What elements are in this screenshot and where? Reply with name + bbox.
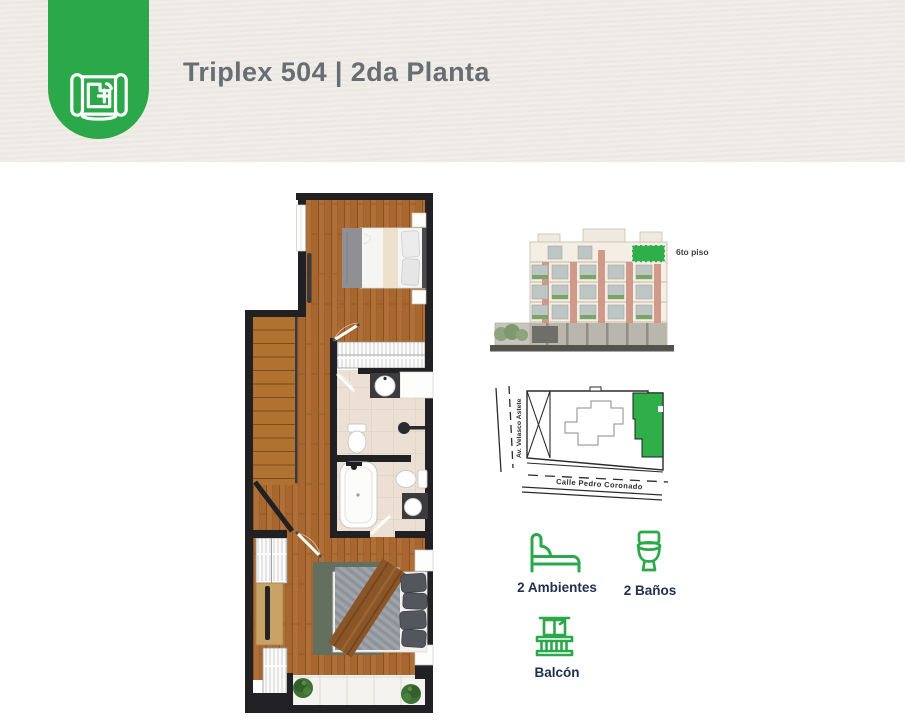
balcony-plant-left [293,678,313,698]
feature-bed-label: 2 Ambientes [512,580,602,595]
toilet-icon [635,530,664,575]
feature-baths-label: 2 Baños [612,583,688,598]
section-badge [48,0,149,139]
elevation-floor-label: 6to piso [676,247,709,257]
page-title: Triplex 504 | 2da Planta [183,57,490,88]
feature-balcony-label: Balcón [512,665,602,680]
bed-icon [526,531,582,575]
blueprint-icon [67,68,131,124]
building-elevation [488,222,688,354]
elevation-highlight-unit [632,245,665,262]
bed-bottom-bedroom [313,558,427,657]
balcony-plant-right [401,684,421,704]
site-map: Av. Velasco Astete Calle Pedro Coronado [490,382,685,507]
tv-bottom-room [265,586,270,640]
street-label-left: Av. Velasco Astete [516,398,523,458]
balcony-icon [531,615,578,659]
floor-plan [240,190,437,713]
